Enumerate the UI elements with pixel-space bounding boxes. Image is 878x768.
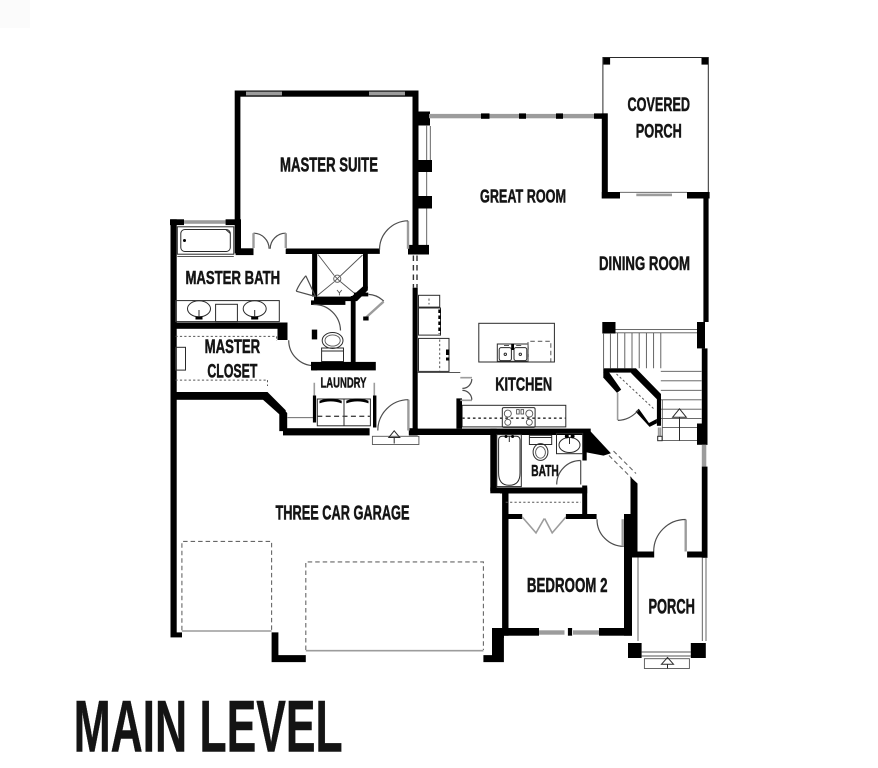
svg-text:BEDROOM 2: BEDROOM 2: [527, 574, 608, 597]
svg-text:CLOSET: CLOSET: [207, 360, 257, 382]
svg-text:MASTER: MASTER: [205, 336, 261, 358]
svg-text:DINING ROOM: DINING ROOM: [599, 253, 690, 275]
svg-text:MASTER BATH: MASTER BATH: [185, 267, 280, 288]
svg-text:COVERED: COVERED: [628, 95, 691, 116]
svg-text:KITCHEN: KITCHEN: [495, 373, 552, 394]
svg-text:MASTER SUITE: MASTER SUITE: [280, 155, 378, 177]
svg-text:PORCH: PORCH: [636, 122, 682, 143]
svg-text:LAUNDRY: LAUNDRY: [321, 374, 367, 391]
svg-text:MAIN LEVEL: MAIN LEVEL: [74, 687, 343, 768]
svg-text:BATH: BATH: [531, 463, 559, 480]
svg-text:PORCH: PORCH: [648, 596, 695, 619]
svg-text:THREE CAR GARAGE: THREE CAR GARAGE: [276, 503, 410, 525]
svg-text:GREAT ROOM: GREAT ROOM: [480, 186, 566, 207]
